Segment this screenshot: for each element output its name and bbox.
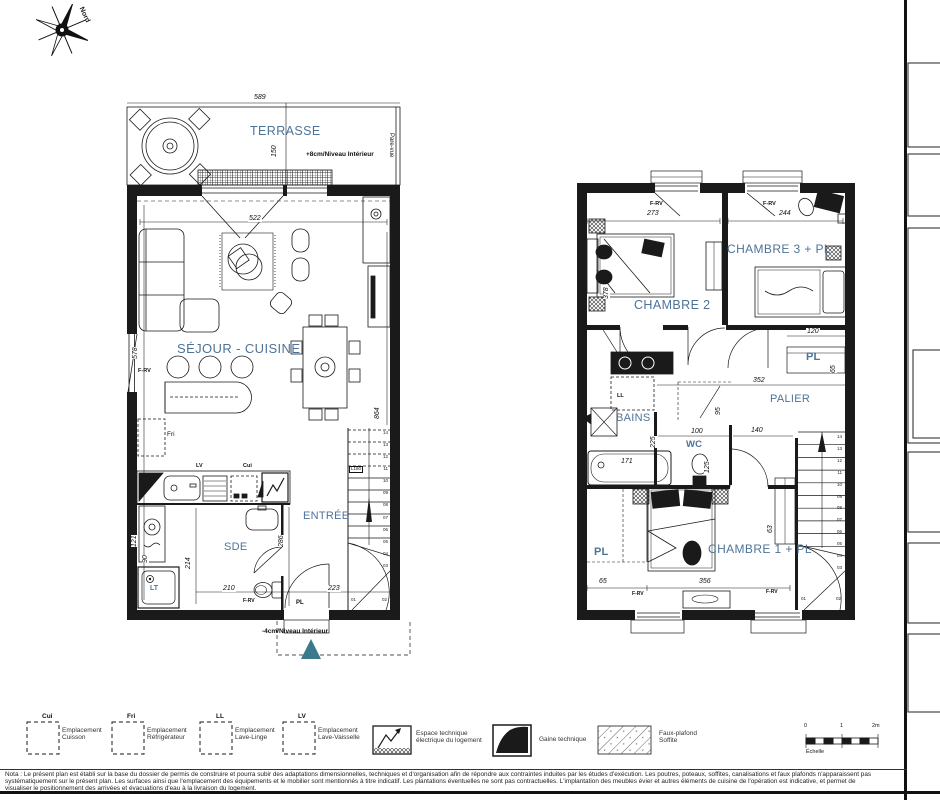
room-label-sde: SDE: [224, 542, 248, 553]
dim-210: 210: [222, 585, 236, 592]
room-label-bains: BAINS: [616, 413, 651, 424]
legend-code-lv: LV: [298, 714, 306, 721]
room-label-wc: WC: [686, 440, 702, 450]
dim-terrace-depth: 150: [271, 145, 278, 157]
tag-lt-shower: LT: [150, 585, 158, 592]
dim-65-pl: 65: [830, 365, 837, 373]
legend-item-lave-linge: Emplacement Lave-Linge: [235, 727, 275, 742]
room-label-entree: ENTRÉE: [303, 511, 349, 522]
ground-furniture: [137, 197, 390, 608]
legend-item-gaine-technique: Gaine technique: [539, 736, 586, 743]
dim-286: 286: [278, 535, 285, 547]
entry-level-note: -4cm/Niveau Intérieur: [262, 629, 328, 636]
stair-l160-label: L160: [349, 466, 363, 473]
ground-stair-02: 02: [382, 598, 387, 603]
dim-121: 121: [131, 535, 138, 547]
terrace-level-note: +8cm/Niveau Intérieur: [306, 152, 374, 159]
dim-352: 352: [752, 377, 766, 384]
tag-frv-door: F-RV: [243, 599, 255, 604]
dim-244: 244: [778, 210, 792, 217]
tag-frv-ch1a: F-RV: [632, 592, 644, 597]
tag-frv-ch2: F-RV: [650, 202, 663, 208]
upper-stair-01: 01: [801, 597, 806, 602]
dim-120: 120: [806, 328, 820, 335]
ground-stair-01: 01: [351, 598, 356, 603]
room-label-chambre2: CHAMBRE 2: [634, 299, 711, 312]
pare-vue-label: Pare-vue: [388, 133, 394, 157]
scale-bar: [806, 734, 878, 748]
ground-terrace: [127, 103, 400, 186]
ground-stair-numbers: 14 13 12 11 10 09 08 07 06 05 04 03: [374, 430, 388, 568]
compass-rose: [26, 0, 99, 66]
room-label-chambre3: CHAMBRE 3 + PL: [727, 243, 831, 255]
tag-frv-ch3: F-RV: [763, 202, 776, 208]
dim-125: 125: [704, 461, 711, 473]
scale-1: 1: [840, 724, 843, 730]
ground-walls: [127, 185, 400, 620]
legend-item-faux-plafond: Faux-plafond Soffite: [659, 730, 697, 745]
ground-openings: [128, 188, 410, 655]
dim-90: 90: [142, 555, 149, 563]
tag-fri: Fri: [167, 432, 175, 439]
upper-stair-numbers: 14 13 12 11 10 09 08 07 06 05 04 03: [828, 434, 842, 570]
tag-pl-entree: PL: [296, 600, 304, 606]
dim-273: 273: [646, 210, 660, 217]
tag-pl-palier: PL: [806, 352, 820, 363]
ground-dim-lines: [140, 205, 390, 606]
dim-95: 95: [715, 407, 722, 415]
dim-terrace-width: 589: [253, 94, 267, 101]
floor-plan-sheet: Nord 589 150 TERRASSE +8cm/Niveau Intéri…: [0, 0, 940, 800]
room-label-sejour-cuisine: SÉJOUR - CUISINE: [177, 342, 300, 355]
legend-item-espace-electrique: Espace technique électrique du logement: [416, 730, 482, 745]
dim-65: 65: [598, 578, 608, 585]
legend-item-lave-vaisselle: Emplacement Lave-Vaisselle: [318, 727, 360, 742]
scale-label: Échelle: [806, 750, 824, 756]
scale-2m: 2m: [872, 724, 880, 730]
dim-63: 63: [767, 525, 774, 533]
tag-pl-ch1: PL: [594, 547, 608, 558]
tag-lv: LV: [196, 464, 203, 470]
legend-item-refrigerateur: Emplacement Réfrigérateur: [147, 727, 187, 742]
dim-578: 578: [132, 347, 139, 359]
dim-171: 171: [620, 458, 634, 465]
dim-100: 100: [690, 428, 704, 435]
dim-214: 214: [185, 557, 192, 569]
legend-code-ll: LL: [216, 714, 224, 721]
dim-140: 140: [750, 427, 764, 434]
dim-225: 225: [650, 436, 657, 448]
dim-378: 378: [603, 287, 610, 299]
dim-522: 522: [248, 215, 262, 222]
tag-ll: LL: [617, 394, 624, 400]
scale-0: 0: [804, 724, 807, 730]
tag-frv-left-window: F-RV: [138, 369, 151, 375]
legend-code-fri: Fri: [127, 714, 135, 721]
legend-item-cuisson: Emplacement Cuisson: [62, 727, 102, 742]
dim-864: 864: [374, 407, 381, 419]
nota-text: Nota : Le présent plan est établi sur la…: [5, 771, 938, 793]
tag-frv-ch1b: F-RV: [766, 590, 778, 595]
tag-cui: Cui: [243, 464, 252, 470]
dim-223: 223: [327, 585, 341, 592]
legend-code-cui: Cui: [42, 714, 52, 721]
upper-stair-02: 02: [836, 597, 841, 602]
dim-356: 356: [698, 578, 712, 585]
room-label-terrasse: TERRASSE: [250, 125, 321, 138]
room-label-chambre1: CHAMBRE 1 + PL: [708, 543, 812, 555]
room-label-palier: PALIER: [770, 394, 810, 405]
